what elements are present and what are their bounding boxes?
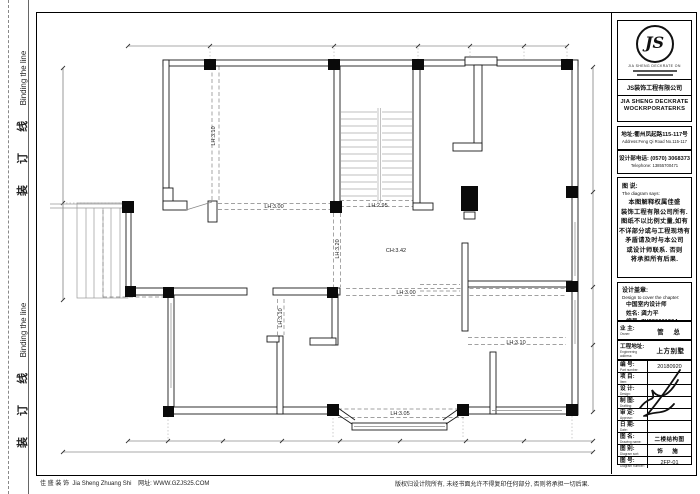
- row-value: 2FP-01: [648, 457, 691, 468]
- phone-cn: 设计部电话: (0570) 3068373: [618, 151, 691, 162]
- micro-text-bar: [637, 74, 673, 76]
- drawing-sheet: 装 订 线 Binding the line 装 订 线 Binding the…: [0, 0, 700, 494]
- exterior-stair: [50, 203, 128, 298]
- owner-value: 管 总: [650, 326, 691, 336]
- note-line: 将承担所有后果.: [618, 255, 691, 265]
- height-label: LH:3.00: [396, 290, 415, 296]
- seal-label-cn: 设计盖章:: [618, 283, 691, 294]
- footer-company: 佳 盛 装 饰 Jia Sheng Zhuang Shi 网址: WWW.GZJ…: [40, 478, 209, 487]
- height-label: LH:2.95: [368, 203, 387, 209]
- address-box: 地址:衢州凤起路115-117号 Address:Feng Qi Road No…: [617, 126, 692, 150]
- logo-box: JS JIA SHENG DECKRATE ON JS装饰工程有限公司 JIA …: [617, 20, 692, 122]
- phone-box: 设计部电话: (0570) 3068373 Telephone: 1385570…: [617, 150, 692, 174]
- height-label: LH:3.20: [335, 239, 341, 258]
- logo-ring-text: JIA SHENG DECKRATE ON: [618, 64, 691, 68]
- note-line: 图纸不以比例丈量,如有: [618, 217, 691, 227]
- note-line: 矛盾请及时与本公司: [618, 236, 691, 246]
- row-value: 饰 施: [648, 445, 691, 456]
- design-seal-box: 设计盖章: Design to cover the chapter: 中国室内设…: [617, 282, 692, 321]
- footer-company-cn: 佳 盛 装 饰: [40, 481, 69, 487]
- table-row-drawing-sort: 图 别: Diagram sort: 饰 施: [618, 445, 691, 457]
- address-en: Address:Feng Qi Road No.115-117: [618, 138, 691, 144]
- table-row-drawing-name: 图 名: Drawing name: 二楼结构图: [618, 433, 691, 445]
- height-label: LH:3.05: [390, 411, 409, 417]
- designer-title: 中国室内设计师: [618, 301, 691, 310]
- note-label-cn: 图 说:: [618, 178, 691, 190]
- project-address-row: 工程地址: Engineering address: 上方别墅: [617, 340, 692, 360]
- height-label: LH:3.10: [211, 126, 217, 145]
- owner-row: 业 主: Owner: 管 总: [617, 321, 692, 340]
- plan-labels: LH:3.10 LH:3.00 LH:2.95 CH:3.42 LH:3.20 …: [211, 126, 526, 417]
- height-label: CH:3.42: [386, 248, 406, 254]
- floor-plan: LH:3.10 LH:3.00 LH:2.95 CH:3.42 LH:3.20 …: [0, 0, 700, 494]
- walls: [126, 57, 578, 430]
- footer-company-en: Jia Sheng Zhuang Shi: [72, 481, 131, 487]
- central-staircase: [341, 108, 412, 203]
- note-line: 或设计师联系. 否则: [618, 246, 691, 256]
- micro-text-bar: [633, 70, 677, 72]
- row-label-en: Date:: [620, 428, 647, 432]
- company-logo-icon: JS: [636, 25, 674, 63]
- footer-website: 网址: WWW.GZJS25.COM: [138, 481, 209, 487]
- company-name-en-1: JIA SHENG DECKRATE: [618, 99, 691, 106]
- row-label-en: Diagram number:: [620, 464, 647, 468]
- owner-label-en: Owner:: [620, 332, 650, 336]
- dimension-ticks: [61, 44, 595, 454]
- window-lines: [171, 202, 575, 427]
- row-label-en: Diagram sort:: [620, 452, 647, 456]
- row-value: 二楼结构图: [648, 433, 691, 444]
- project-address-value: 上方别墅: [650, 345, 691, 355]
- note-line: 本图解释权属佳盛: [618, 198, 691, 208]
- table-row-drawing-number: 图 号: Diagram number: 2FP-01: [618, 457, 691, 468]
- address-cn: 地址:衢州凤起路115-117号: [618, 127, 691, 138]
- company-name-en-2: WOCKRPORATERKS: [618, 106, 691, 113]
- diagram-note-box: 图 说: The diagram says: 本图解释权属佳盛 装饰工程有限公司…: [617, 177, 692, 278]
- footer-copyright: 版权归设计院所有, 未经书面允许不得复印任何部分, 否则将承担一切后果.: [395, 479, 589, 488]
- note-line: 装饰工程有限公司所有.: [618, 208, 691, 218]
- columns: [122, 59, 578, 417]
- row-label-en: Drawing name:: [620, 440, 647, 444]
- height-label: LH:3.10: [506, 340, 525, 346]
- project-address-label-en: Engineering address:: [620, 350, 650, 358]
- designer-name: 姓名: 龚力平: [618, 310, 691, 319]
- company-name-cn: JS装饰工程有限公司: [618, 79, 691, 96]
- seal-label-en: Design to cover the chapter:: [618, 294, 691, 301]
- signature: [630, 364, 692, 426]
- phone-en: Telephone: 13855700471: [618, 162, 691, 168]
- height-label: LH:3.00: [264, 204, 283, 210]
- dimension-lines: [63, 46, 593, 452]
- height-label: LH:3.10: [278, 308, 284, 327]
- note-line: 不详部分或与工程现场有: [618, 227, 691, 237]
- note-label-en: The diagram says:: [618, 190, 691, 198]
